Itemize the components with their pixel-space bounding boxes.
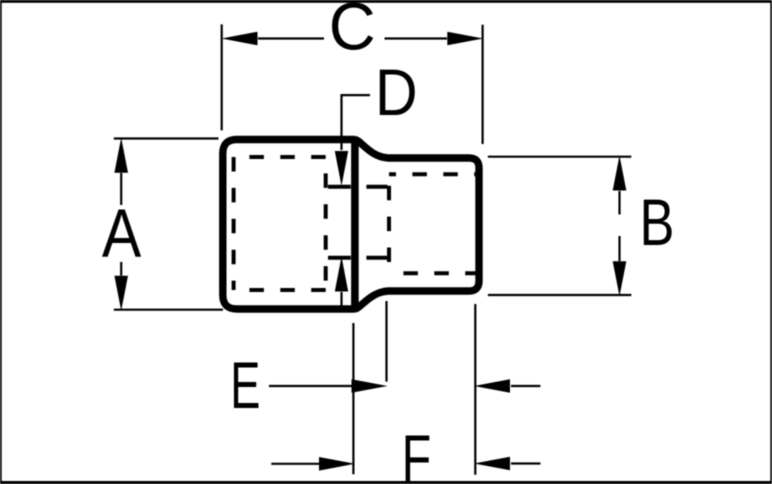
- svg-text:F: F: [402, 423, 432, 484]
- svg-text:A: A: [102, 195, 142, 272]
- svg-text:C: C: [329, 0, 376, 64]
- svg-text:D: D: [375, 57, 418, 130]
- svg-text:B: B: [640, 185, 675, 259]
- svg-text:E: E: [230, 349, 260, 422]
